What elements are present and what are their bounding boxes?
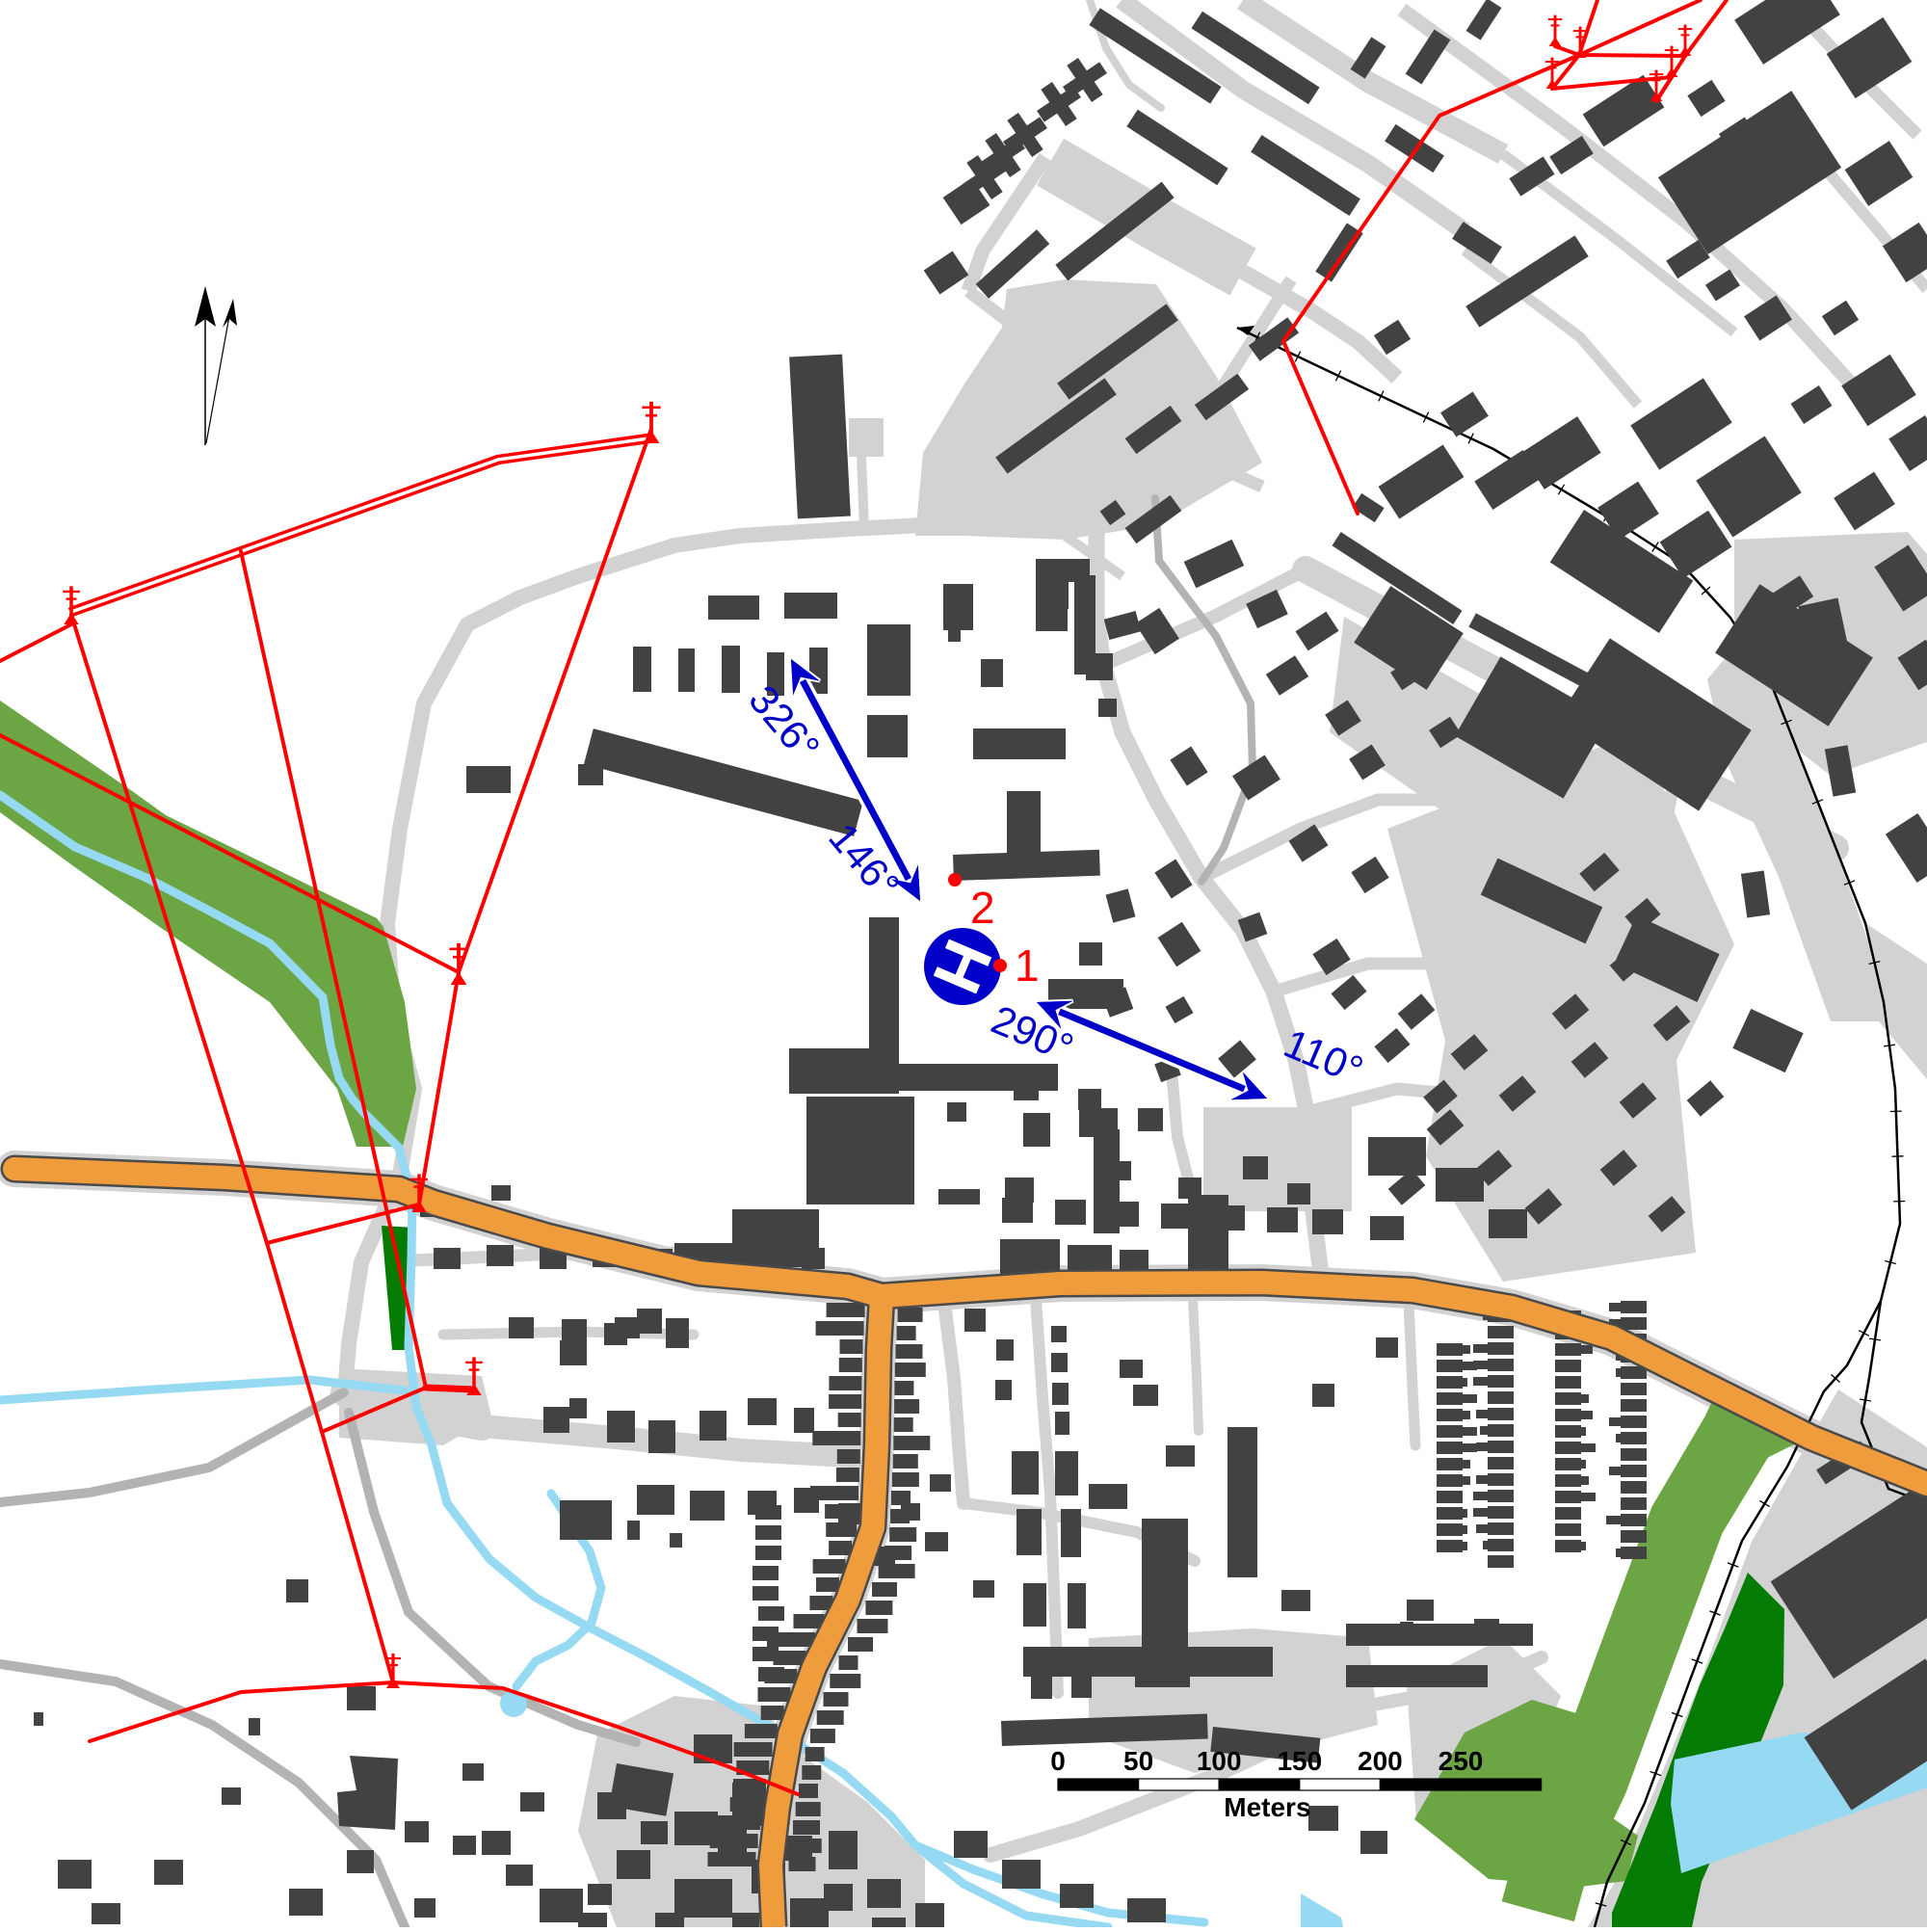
- svg-text:2: 2: [970, 883, 995, 933]
- svg-text:200: 200: [1358, 1746, 1403, 1776]
- svg-text:1: 1: [1015, 940, 1040, 991]
- svg-text:Meters: Meters: [1224, 1792, 1310, 1822]
- svg-text:0: 0: [1050, 1746, 1066, 1776]
- svg-text:50: 50: [1123, 1746, 1153, 1776]
- svg-text:150: 150: [1277, 1746, 1322, 1776]
- svg-text:100: 100: [1197, 1746, 1242, 1776]
- svg-text:250: 250: [1439, 1746, 1484, 1776]
